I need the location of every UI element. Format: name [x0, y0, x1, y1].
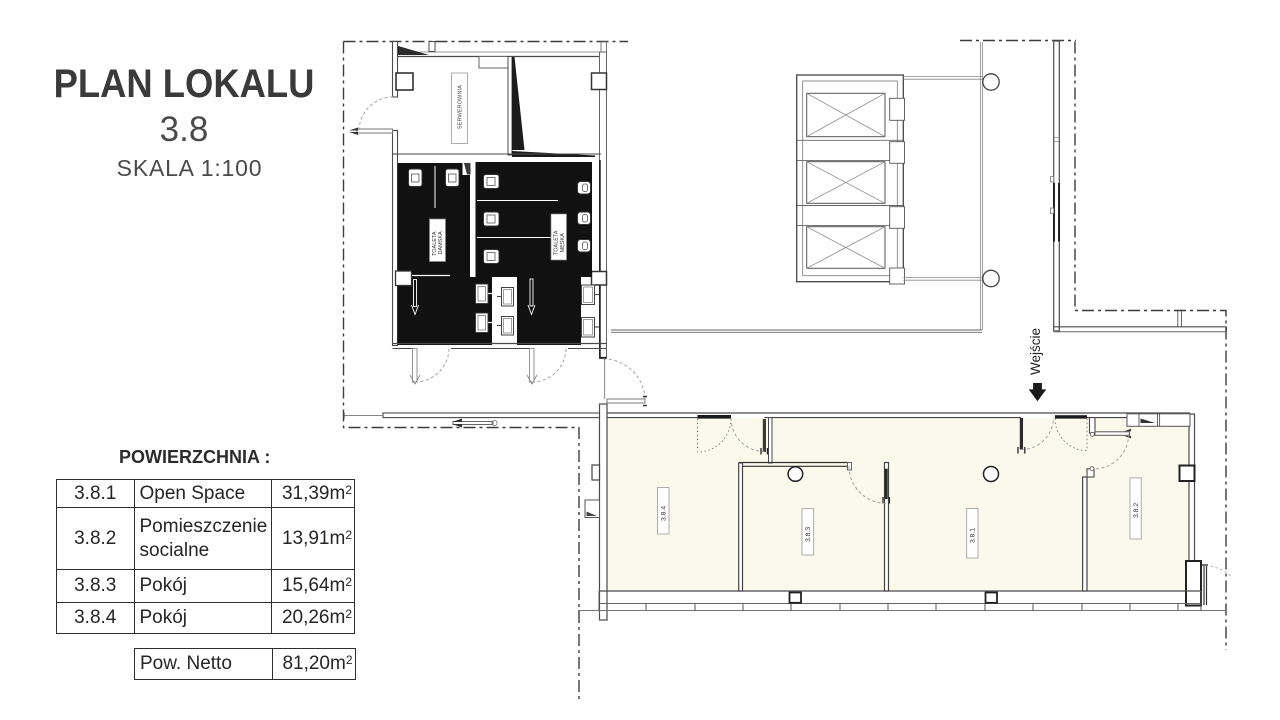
- svg-text:TOALETA: TOALETA: [432, 231, 438, 256]
- svg-text:MĘSKA: MĘSKA: [560, 233, 566, 253]
- svg-text:3.8.1: 3.8.1: [970, 528, 977, 543]
- svg-text:Wejście: Wejście: [1028, 328, 1043, 375]
- svg-text:DAMSKA: DAMSKA: [438, 231, 444, 255]
- svg-text:3.8.2: 3.8.2: [1133, 503, 1140, 518]
- svg-text:TOALETA: TOALETA: [553, 230, 559, 255]
- svg-text:3.8.4: 3.8.4: [661, 506, 668, 521]
- svg-text:SERWEROWNIA: SERWEROWNIA: [458, 85, 464, 129]
- svg-text:3.8.3: 3.8.3: [805, 527, 812, 542]
